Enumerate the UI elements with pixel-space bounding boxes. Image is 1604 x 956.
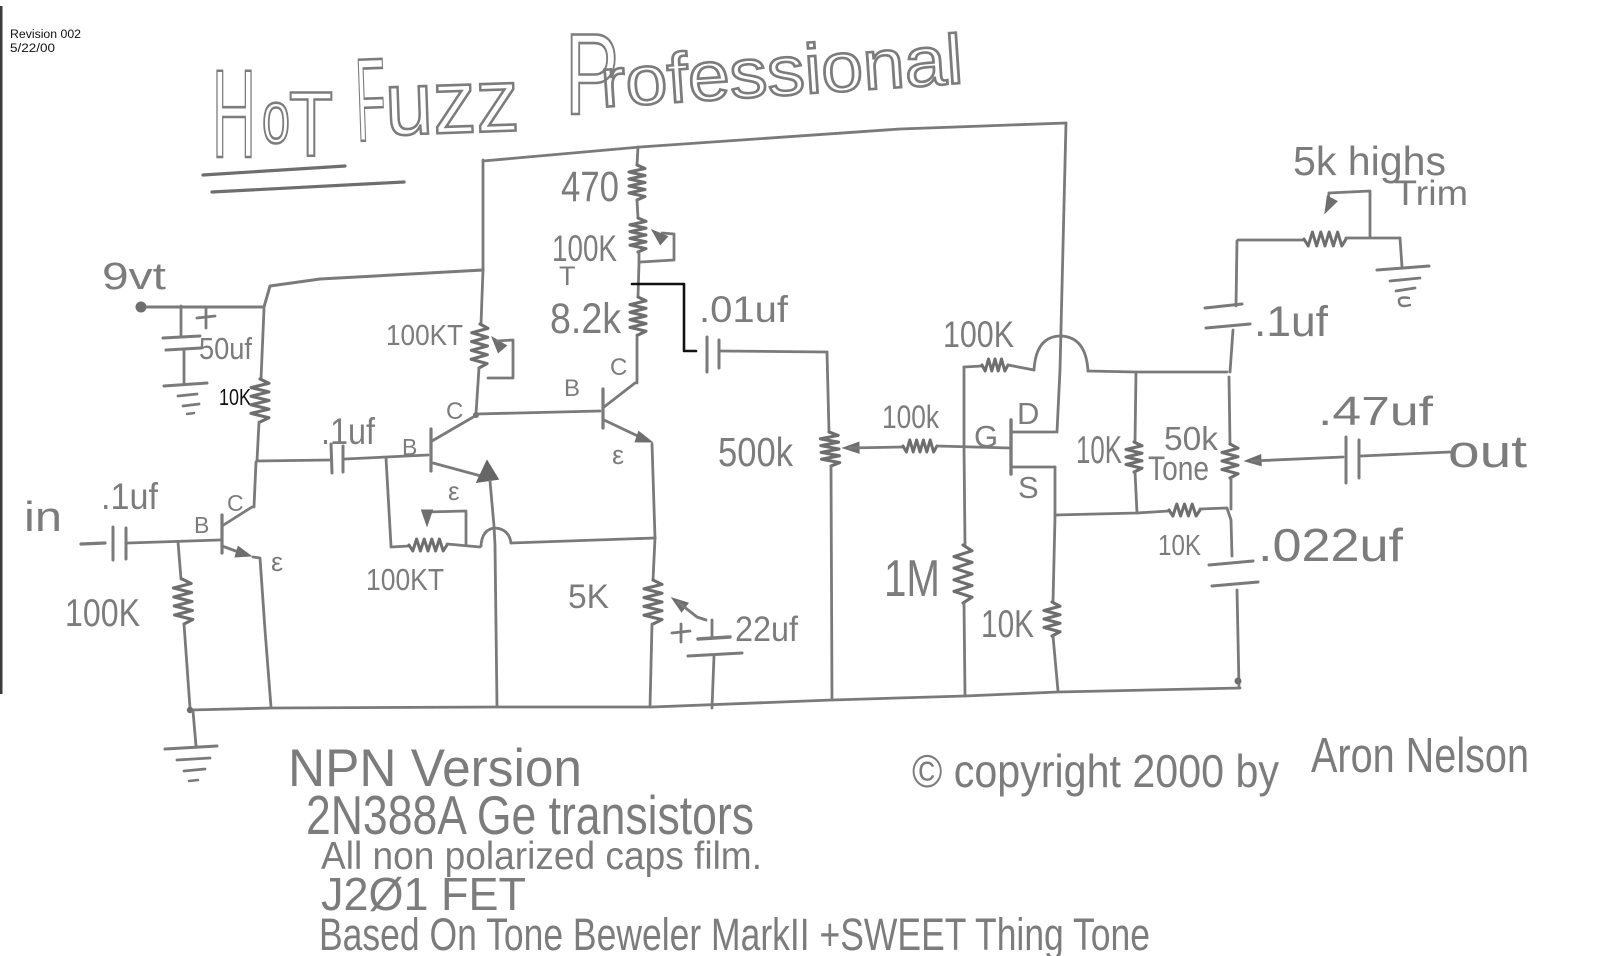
svg-text:© copyright 2000 by: © copyright 2000 by	[912, 745, 1279, 797]
svg-text:.1uf: .1uf	[1254, 298, 1329, 346]
svg-text:Based On Tone Beweler MarkII +: Based On Tone Beweler MarkII +SWEET Thin…	[319, 909, 1150, 956]
svg-text:H: H	[212, 45, 256, 184]
svg-text:o: o	[262, 76, 290, 159]
svg-text:C: C	[227, 490, 244, 516]
svg-text:100K: 100K	[943, 314, 1014, 355]
svg-text:100KT: 100KT	[386, 320, 463, 352]
svg-text:10K: 10K	[981, 603, 1034, 646]
svg-text:470: 470	[561, 163, 619, 211]
svg-text:1M: 1M	[884, 550, 940, 608]
svg-text:G: G	[974, 419, 998, 454]
svg-text:.1uf: .1uf	[101, 476, 159, 517]
svg-text:S: S	[1018, 470, 1039, 505]
svg-text:uzz: uzz	[383, 50, 520, 155]
svg-text:ε: ε	[448, 476, 460, 506]
svg-text:5/22/00: 5/22/00	[10, 43, 55, 55]
svg-text:C: C	[610, 354, 627, 381]
svg-text:Revision 002: Revision 002	[10, 29, 81, 41]
svg-text:100k: 100k	[882, 399, 940, 435]
svg-text:10K: 10K	[1158, 530, 1202, 562]
svg-text:T: T	[289, 74, 333, 176]
svg-text:C: C	[446, 398, 463, 425]
svg-text:Aron Nelson: Aron Nelson	[1311, 729, 1529, 783]
svg-text:10K: 10K	[219, 384, 252, 410]
svg-text:.01uf: .01uf	[699, 289, 789, 330]
svg-text:9vt: 9vt	[102, 256, 167, 298]
svg-text:.022uf: .022uf	[1258, 519, 1403, 571]
svg-text:ε: ε	[612, 440, 624, 470]
svg-text:F: F	[353, 34, 388, 167]
svg-text:B: B	[564, 375, 580, 402]
svg-text:500k: 500k	[718, 429, 793, 475]
svg-text:out: out	[1448, 426, 1528, 477]
svg-text:22uf: 22uf	[735, 610, 798, 649]
svg-text:50uf: 50uf	[199, 331, 252, 366]
svg-text:B: B	[194, 512, 209, 538]
svg-text:D: D	[1017, 396, 1039, 431]
svg-text:.47uf: .47uf	[1318, 388, 1434, 434]
svg-text:10K: 10K	[1076, 429, 1122, 472]
svg-text:100K: 100K	[65, 592, 140, 635]
svg-text:in: in	[24, 493, 62, 540]
svg-text:5K: 5K	[568, 578, 609, 616]
svg-text:ε: ε	[271, 547, 283, 577]
svg-text:T: T	[559, 261, 576, 291]
svg-text:Tone: Tone	[1148, 450, 1209, 488]
svg-text:B: B	[402, 434, 417, 460]
svg-text:100KT: 100KT	[366, 562, 444, 597]
svg-text:8.2k: 8.2k	[550, 295, 621, 343]
svg-text:.1uf: .1uf	[321, 411, 376, 452]
svg-text:Trim: Trim	[1394, 174, 1468, 213]
